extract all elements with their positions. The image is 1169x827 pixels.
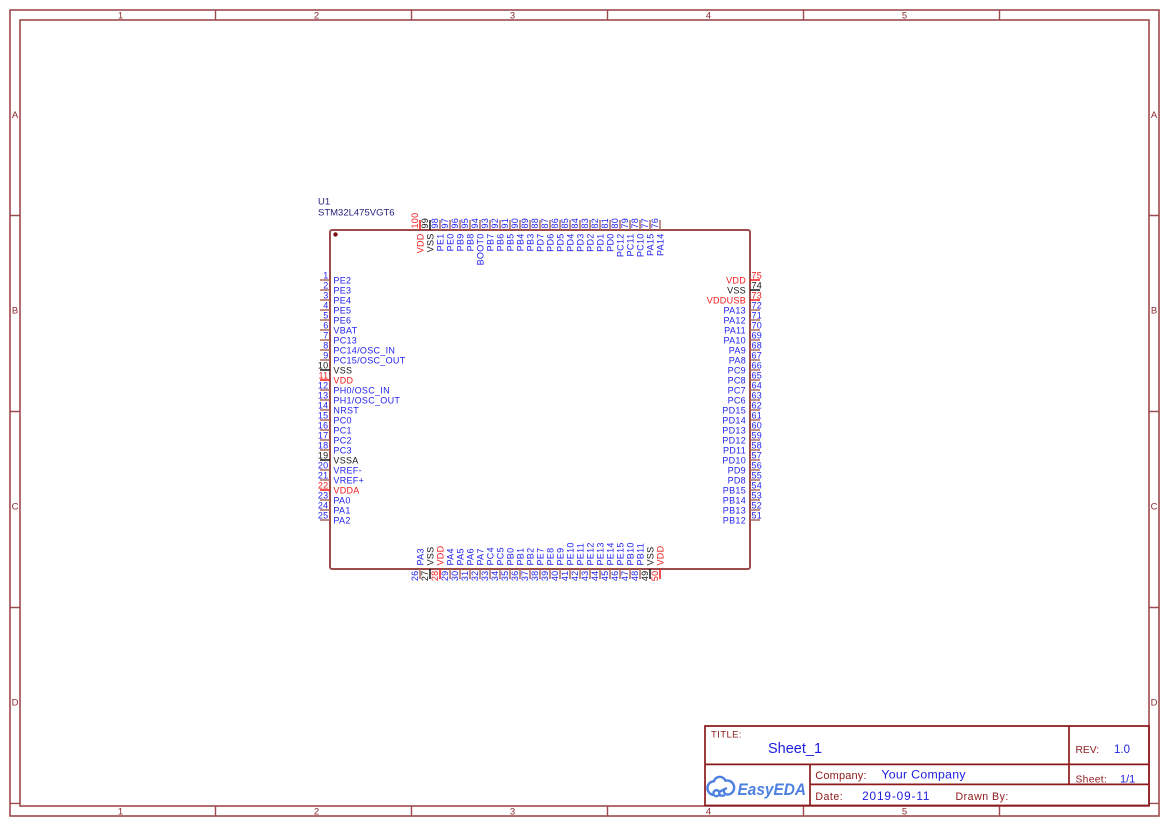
svg-text:PB13: PB13 xyxy=(723,505,746,515)
svg-text:49: 49 xyxy=(640,571,650,582)
svg-text:95: 95 xyxy=(460,218,470,229)
svg-text:43: 43 xyxy=(580,571,590,582)
svg-text:61: 61 xyxy=(752,410,763,420)
svg-text:PD10: PD10 xyxy=(722,455,746,465)
svg-text:PH0/OSC_IN: PH0/OSC_IN xyxy=(333,385,390,395)
svg-text:14: 14 xyxy=(318,400,329,410)
svg-text:PA2: PA2 xyxy=(333,515,350,525)
svg-text:PB3: PB3 xyxy=(525,233,535,251)
svg-text:79: 79 xyxy=(620,218,630,229)
svg-text:1.0: 1.0 xyxy=(1114,744,1130,756)
svg-text:VDD: VDD xyxy=(726,275,746,285)
svg-text:B: B xyxy=(12,306,18,317)
svg-text:2019-09-11: 2019-09-11 xyxy=(862,789,930,803)
svg-text:PD14: PD14 xyxy=(722,415,746,425)
svg-text:PE15: PE15 xyxy=(615,542,625,565)
svg-text:4: 4 xyxy=(706,11,711,22)
svg-text:PB15: PB15 xyxy=(723,485,746,495)
svg-text:VSS: VSS xyxy=(727,285,746,295)
svg-text:47: 47 xyxy=(620,571,630,582)
svg-text:PD7: PD7 xyxy=(535,233,545,251)
svg-text:PH1/OSC_OUT: PH1/OSC_OUT xyxy=(333,395,400,405)
svg-text:PD1: PD1 xyxy=(595,233,605,251)
svg-text:15: 15 xyxy=(318,410,329,420)
svg-text:VDD: VDD xyxy=(415,233,425,253)
svg-text:PC11: PC11 xyxy=(625,233,635,256)
svg-text:D: D xyxy=(1151,698,1158,709)
svg-text:VDDUSB: VDDUSB xyxy=(707,295,746,305)
svg-text:PE9: PE9 xyxy=(555,548,565,566)
svg-text:PA3: PA3 xyxy=(415,548,425,565)
svg-text:46: 46 xyxy=(610,571,620,582)
svg-text:PE12: PE12 xyxy=(585,542,595,565)
svg-text:20: 20 xyxy=(318,460,329,470)
svg-text:STM32L475VGT6: STM32L475VGT6 xyxy=(318,208,395,219)
svg-text:VBAT: VBAT xyxy=(333,325,357,335)
svg-text:PA4: PA4 xyxy=(445,548,455,565)
svg-text:50: 50 xyxy=(650,571,660,582)
svg-text:19: 19 xyxy=(318,450,329,460)
svg-text:24: 24 xyxy=(318,500,329,510)
svg-text:87: 87 xyxy=(540,218,550,229)
svg-text:31: 31 xyxy=(460,571,470,582)
svg-text:9: 9 xyxy=(323,350,328,360)
svg-text:34: 34 xyxy=(490,571,500,582)
svg-text:5: 5 xyxy=(902,807,907,818)
svg-text:76: 76 xyxy=(650,218,660,229)
svg-text:62: 62 xyxy=(752,400,763,410)
svg-text:7: 7 xyxy=(323,330,328,340)
svg-text:PE10: PE10 xyxy=(565,542,575,565)
svg-text:60: 60 xyxy=(752,420,763,430)
svg-text:PA5: PA5 xyxy=(455,548,465,565)
svg-text:10: 10 xyxy=(318,360,329,370)
svg-text:23: 23 xyxy=(318,490,329,500)
svg-text:U1: U1 xyxy=(318,197,330,208)
svg-text:PA11: PA11 xyxy=(724,325,746,335)
svg-text:6: 6 xyxy=(323,320,328,330)
svg-text:B: B xyxy=(1151,306,1157,317)
svg-text:86: 86 xyxy=(550,218,560,229)
svg-text:96: 96 xyxy=(450,218,460,229)
svg-text:42: 42 xyxy=(570,571,580,582)
svg-text:93: 93 xyxy=(480,218,490,229)
svg-text:NRST: NRST xyxy=(333,405,359,415)
svg-text:78: 78 xyxy=(630,218,640,229)
svg-text:PB12: PB12 xyxy=(723,515,746,525)
svg-text:PE8: PE8 xyxy=(545,548,555,566)
svg-text:98: 98 xyxy=(430,218,440,229)
svg-text:91: 91 xyxy=(500,218,510,229)
svg-text:PC2: PC2 xyxy=(333,435,351,445)
svg-text:PC15/OSC_OUT: PC15/OSC_OUT xyxy=(333,355,405,365)
svg-text:90: 90 xyxy=(510,218,520,229)
svg-text:58: 58 xyxy=(752,440,763,450)
svg-text:PD5: PD5 xyxy=(555,233,565,251)
svg-text:44: 44 xyxy=(590,571,600,582)
svg-text:PD9: PD9 xyxy=(728,465,746,475)
svg-text:65: 65 xyxy=(752,370,763,380)
svg-text:54: 54 xyxy=(752,480,763,490)
svg-text:1/1: 1/1 xyxy=(1120,774,1135,786)
svg-text:57: 57 xyxy=(752,450,763,460)
svg-text:PA8: PA8 xyxy=(729,355,746,365)
svg-text:3: 3 xyxy=(510,807,515,818)
svg-text:97: 97 xyxy=(440,218,450,229)
svg-text:72: 72 xyxy=(752,300,763,310)
svg-text:100: 100 xyxy=(410,213,420,229)
svg-text:VREF-: VREF- xyxy=(333,465,362,475)
svg-text:16: 16 xyxy=(318,420,329,430)
svg-text:PD0: PD0 xyxy=(605,233,615,251)
svg-text:81: 81 xyxy=(600,218,610,229)
svg-text:PB10: PB10 xyxy=(625,542,635,565)
svg-text:PB9: PB9 xyxy=(455,233,465,251)
svg-text:5: 5 xyxy=(902,11,907,22)
svg-text:VSS: VSS xyxy=(425,233,435,252)
svg-text:PD3: PD3 xyxy=(575,233,585,251)
svg-text:2: 2 xyxy=(323,280,328,290)
svg-text:PC4: PC4 xyxy=(485,547,495,565)
svg-text:PB1: PB1 xyxy=(515,548,525,566)
svg-text:C: C xyxy=(12,502,19,513)
svg-text:VDD: VDD xyxy=(655,545,665,565)
svg-text:67: 67 xyxy=(752,350,763,360)
svg-text:PE7: PE7 xyxy=(535,548,545,566)
svg-text:PB4: PB4 xyxy=(515,233,525,251)
svg-text:69: 69 xyxy=(752,330,763,340)
svg-text:PD11: PD11 xyxy=(723,445,746,455)
svg-text:Sheet_1: Sheet_1 xyxy=(768,741,822,757)
svg-text:BOOT0: BOOT0 xyxy=(475,233,485,265)
svg-text:94: 94 xyxy=(470,218,480,229)
svg-text:26: 26 xyxy=(410,571,420,582)
svg-text:27: 27 xyxy=(420,571,430,582)
svg-text:PC12: PC12 xyxy=(615,233,625,257)
svg-text:29: 29 xyxy=(440,571,450,582)
svg-text:PC14/OSC_IN: PC14/OSC_IN xyxy=(333,345,395,355)
svg-text:73: 73 xyxy=(752,290,763,300)
svg-text:PA7: PA7 xyxy=(475,548,485,565)
svg-text:EasyEDA: EasyEDA xyxy=(738,780,807,799)
svg-text:PE3: PE3 xyxy=(333,285,351,295)
svg-text:17: 17 xyxy=(318,430,329,440)
svg-text:PC8: PC8 xyxy=(728,375,746,385)
svg-text:74: 74 xyxy=(752,280,763,290)
svg-text:PB2: PB2 xyxy=(525,548,535,566)
svg-text:PC13: PC13 xyxy=(333,335,357,345)
svg-text:30: 30 xyxy=(450,571,460,582)
svg-text:PB7: PB7 xyxy=(485,233,495,251)
svg-text:PE2: PE2 xyxy=(333,275,351,285)
svg-text:PA1: PA1 xyxy=(333,505,350,515)
svg-text:Company:: Company: xyxy=(815,770,866,782)
svg-text:71: 71 xyxy=(752,310,763,320)
svg-text:PD13: PD13 xyxy=(722,425,746,435)
svg-text:VSS: VSS xyxy=(645,547,655,566)
svg-text:21: 21 xyxy=(318,470,329,480)
svg-text:84: 84 xyxy=(570,218,580,229)
svg-text:PC10: PC10 xyxy=(635,233,645,257)
svg-text:PA12: PA12 xyxy=(723,315,746,325)
svg-text:VSSA: VSSA xyxy=(333,455,358,465)
svg-text:PC9: PC9 xyxy=(728,365,746,375)
svg-text:1: 1 xyxy=(323,270,328,280)
svg-text:PE1: PE1 xyxy=(435,233,445,251)
svg-text:37: 37 xyxy=(520,571,530,582)
svg-text:41: 41 xyxy=(560,571,570,582)
svg-text:33: 33 xyxy=(480,571,490,582)
svg-text:45: 45 xyxy=(600,571,610,582)
svg-text:99: 99 xyxy=(420,218,430,229)
svg-text:PC0: PC0 xyxy=(333,415,351,425)
svg-text:40: 40 xyxy=(550,571,560,582)
svg-text:22: 22 xyxy=(318,480,329,490)
svg-text:PE0: PE0 xyxy=(445,233,455,251)
svg-text:PD6: PD6 xyxy=(545,233,555,251)
svg-text:70: 70 xyxy=(752,320,763,330)
svg-text:66: 66 xyxy=(752,360,763,370)
svg-text:PD2: PD2 xyxy=(585,233,595,251)
svg-text:77: 77 xyxy=(640,218,650,229)
svg-text:3: 3 xyxy=(323,290,328,300)
svg-text:PB6: PB6 xyxy=(495,233,505,251)
svg-text:C: C xyxy=(1151,502,1158,513)
svg-text:39: 39 xyxy=(540,571,550,582)
svg-text:89: 89 xyxy=(520,218,530,229)
svg-text:63: 63 xyxy=(752,390,763,400)
svg-text:PA6: PA6 xyxy=(465,548,475,565)
svg-text:PC7: PC7 xyxy=(728,385,746,395)
svg-text:VSS: VSS xyxy=(425,547,435,566)
svg-text:PC3: PC3 xyxy=(333,445,351,455)
svg-text:68: 68 xyxy=(752,340,763,350)
svg-text:2: 2 xyxy=(314,807,319,818)
svg-text:PA10: PA10 xyxy=(723,335,746,345)
svg-text:18: 18 xyxy=(318,440,329,450)
svg-text:38: 38 xyxy=(530,571,540,582)
svg-text:PB14: PB14 xyxy=(723,495,746,505)
svg-text:REV:: REV: xyxy=(1076,745,1100,756)
svg-text:48: 48 xyxy=(630,571,640,582)
svg-text:PE13: PE13 xyxy=(595,542,605,565)
svg-text:55: 55 xyxy=(752,470,763,480)
svg-text:53: 53 xyxy=(752,490,763,500)
svg-text:PD4: PD4 xyxy=(565,233,575,251)
svg-text:PD15: PD15 xyxy=(722,405,746,415)
svg-text:13: 13 xyxy=(318,390,329,400)
svg-text:51: 51 xyxy=(752,510,763,520)
svg-text:PB0: PB0 xyxy=(505,548,515,566)
svg-text:88: 88 xyxy=(530,218,540,229)
svg-text:PA13: PA13 xyxy=(723,305,746,315)
svg-text:5: 5 xyxy=(323,310,328,320)
svg-text:A: A xyxy=(1151,110,1158,121)
svg-text:80: 80 xyxy=(610,218,620,229)
svg-text:32: 32 xyxy=(470,571,480,582)
svg-text:PE6: PE6 xyxy=(333,315,351,325)
svg-text:VDDA: VDDA xyxy=(333,485,359,495)
svg-text:35: 35 xyxy=(500,571,510,582)
svg-text:85: 85 xyxy=(560,218,570,229)
svg-text:1: 1 xyxy=(118,807,123,818)
svg-text:82: 82 xyxy=(590,218,600,229)
svg-text:25: 25 xyxy=(318,510,329,520)
svg-text:VSS: VSS xyxy=(333,365,352,375)
svg-text:PA14: PA14 xyxy=(655,233,665,256)
svg-text:PC5: PC5 xyxy=(495,547,505,565)
svg-text:3: 3 xyxy=(510,11,515,22)
svg-text:59: 59 xyxy=(752,430,763,440)
svg-text:PD8: PD8 xyxy=(728,475,746,485)
svg-text:PC1: PC1 xyxy=(333,425,351,435)
svg-text:TITLE:: TITLE: xyxy=(711,730,742,741)
svg-text:Your Company: Your Company xyxy=(881,768,966,782)
svg-text:75: 75 xyxy=(752,270,763,280)
svg-text:PB11: PB11 xyxy=(635,543,645,566)
svg-text:PE11: PE11 xyxy=(575,543,585,566)
svg-text:4: 4 xyxy=(706,807,711,818)
svg-text:2: 2 xyxy=(314,11,319,22)
svg-text:A: A xyxy=(12,110,19,121)
svg-text:Drawn By:: Drawn By: xyxy=(956,791,1009,803)
svg-text:92: 92 xyxy=(490,218,500,229)
svg-text:11: 11 xyxy=(319,370,329,380)
svg-text:VDD: VDD xyxy=(333,375,353,385)
svg-text:PE4: PE4 xyxy=(333,295,351,305)
svg-text:Date:: Date: xyxy=(815,791,843,803)
svg-text:VDD: VDD xyxy=(435,545,445,565)
svg-text:PE14: PE14 xyxy=(605,542,615,565)
svg-text:PA0: PA0 xyxy=(333,495,350,505)
svg-text:1: 1 xyxy=(118,11,123,22)
svg-text:52: 52 xyxy=(752,500,763,510)
svg-text:Sheet:: Sheet: xyxy=(1076,775,1108,786)
svg-text:PA9: PA9 xyxy=(729,345,746,355)
svg-text:83: 83 xyxy=(580,218,590,229)
svg-text:PB5: PB5 xyxy=(505,233,515,251)
svg-text:36: 36 xyxy=(510,571,520,582)
svg-text:56: 56 xyxy=(752,460,763,470)
svg-text:D: D xyxy=(12,698,19,709)
svg-text:PD12: PD12 xyxy=(722,435,746,445)
svg-text:VREF+: VREF+ xyxy=(333,475,364,485)
svg-text:4: 4 xyxy=(323,300,328,310)
svg-text:64: 64 xyxy=(752,380,763,390)
svg-text:PE5: PE5 xyxy=(333,305,351,315)
svg-text:28: 28 xyxy=(430,571,440,582)
svg-text:12: 12 xyxy=(318,380,329,390)
svg-text:PC6: PC6 xyxy=(728,395,746,405)
svg-text:PA15: PA15 xyxy=(645,233,655,256)
svg-text:PB8: PB8 xyxy=(465,233,475,251)
svg-text:8: 8 xyxy=(323,340,328,350)
